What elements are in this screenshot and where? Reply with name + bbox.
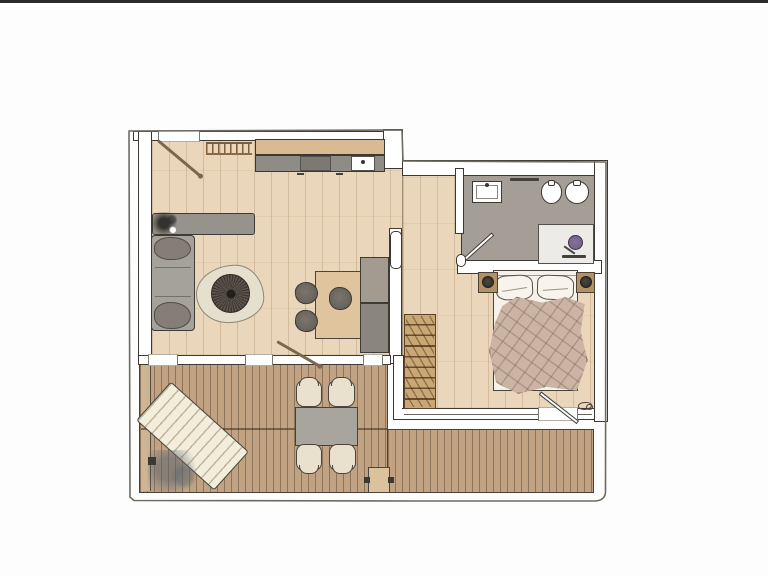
outdoor-chair-bottom-right	[329, 444, 356, 471]
coffee-table	[211, 274, 250, 313]
floor-plan-scene	[0, 0, 768, 576]
wall-left	[138, 131, 152, 364]
deck-right	[387, 429, 594, 493]
kitchen-sink	[351, 156, 375, 171]
toilet	[565, 181, 589, 204]
outdoor-chair-top-left	[296, 380, 322, 407]
pillow-right	[537, 274, 575, 300]
shower-tray	[538, 224, 594, 264]
shower-head	[568, 235, 583, 250]
deck-plant-pot	[148, 457, 156, 465]
nightstand-lamp-left	[482, 276, 494, 288]
bidet	[541, 181, 562, 204]
step-dot-right	[388, 477, 394, 483]
window-right	[363, 354, 383, 366]
window-middle	[245, 354, 273, 366]
deck-step	[368, 467, 390, 493]
door-hardware-mark	[578, 402, 592, 410]
kitchen-cooktop	[300, 156, 331, 171]
wall-east	[594, 160, 608, 422]
tall-cabinet-upper	[360, 257, 389, 303]
cabinet-handle-right	[336, 173, 343, 175]
wardrobe-rack	[404, 314, 436, 409]
sofa-cushion-top	[154, 237, 191, 260]
cabinet-handle-left	[297, 173, 304, 175]
shower-base-line	[562, 255, 586, 258]
washbasin	[472, 181, 502, 203]
pocket-door	[390, 231, 402, 269]
tall-cabinet-lower	[360, 303, 389, 353]
floor-plan-page	[0, 0, 768, 576]
dining-chair-3	[329, 287, 352, 310]
coat-rack	[206, 142, 252, 155]
window-left	[148, 354, 178, 366]
outdoor-table	[295, 407, 358, 446]
wall-bathroom-west	[455, 168, 464, 234]
sofa-cushion-bottom	[154, 302, 191, 329]
wall-top-right	[402, 160, 608, 176]
bathroom-threshold	[456, 254, 466, 267]
towel-rail	[510, 178, 539, 181]
outdoor-chair-top-right	[328, 380, 355, 407]
bed-blanket	[487, 294, 588, 394]
wall-step-top	[383, 129, 403, 169]
nightstand-lamp-right	[580, 276, 592, 288]
pillow-left	[495, 274, 533, 301]
outdoor-chair-bottom-left	[296, 444, 322, 471]
entry-opening	[158, 130, 200, 142]
kitchen-counter	[255, 139, 385, 155]
sideboard-plant	[153, 212, 179, 235]
step-dot-left	[364, 477, 370, 483]
